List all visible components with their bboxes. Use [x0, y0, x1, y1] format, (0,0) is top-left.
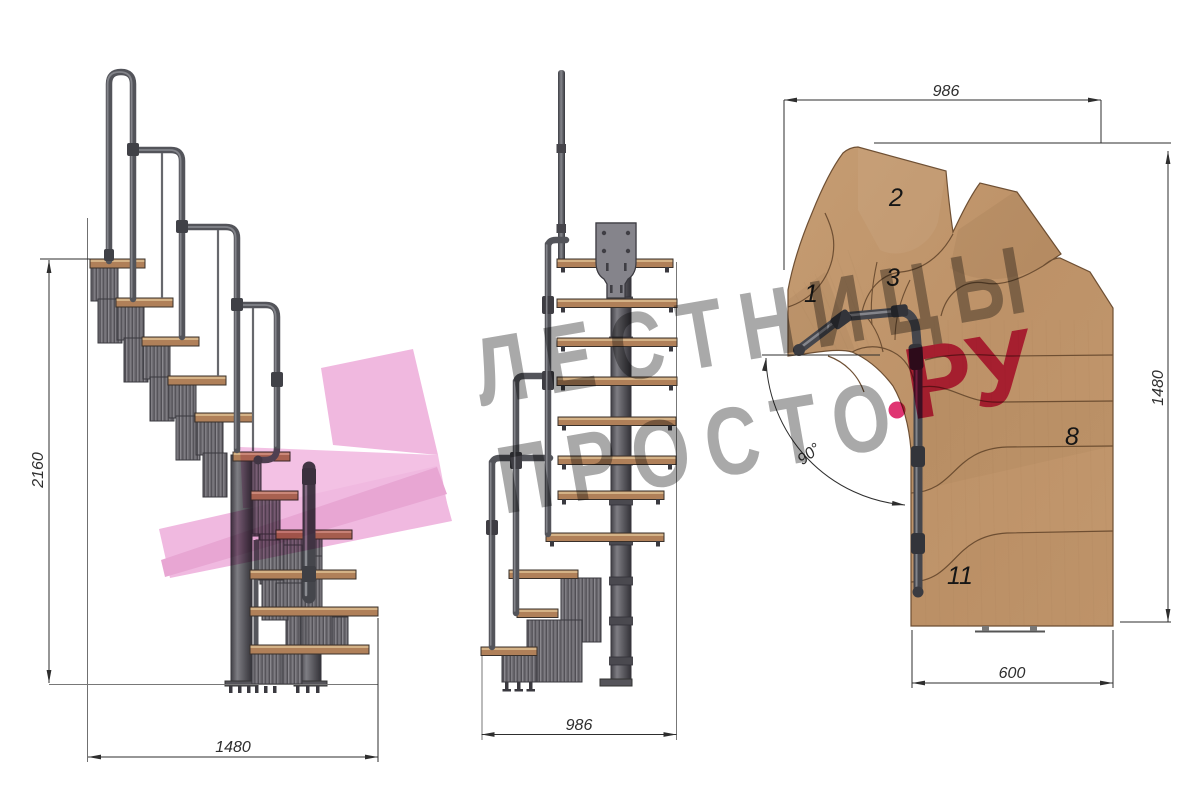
svg-text:600: 600	[999, 665, 1026, 682]
svg-text:РУ: РУ	[897, 308, 1044, 440]
svg-text:1480: 1480	[215, 739, 251, 756]
svg-text:986: 986	[933, 83, 960, 100]
svg-text:2160: 2160	[30, 452, 47, 489]
svg-text:8: 8	[1065, 423, 1079, 451]
svg-text:2: 2	[888, 184, 903, 212]
svg-text:1480: 1480	[1150, 370, 1167, 406]
svg-text:986: 986	[566, 717, 593, 734]
svg-text:11: 11	[947, 562, 973, 590]
